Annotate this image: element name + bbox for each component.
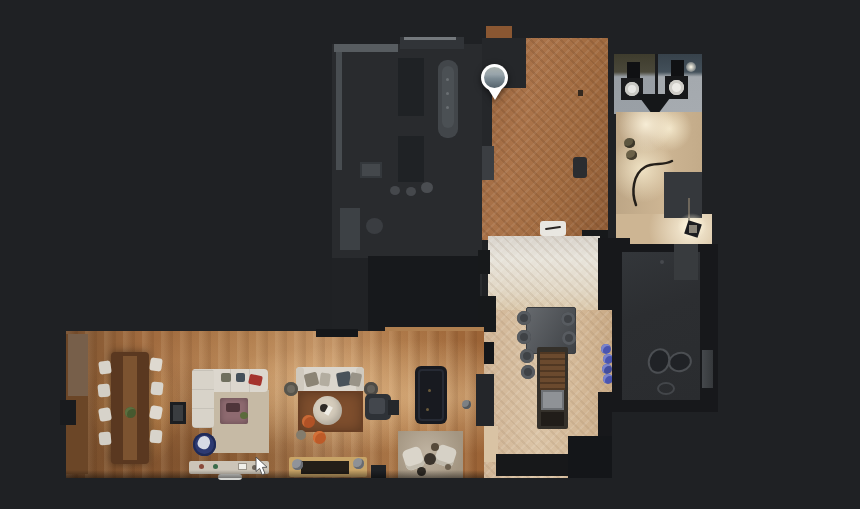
island-sink xyxy=(541,390,564,410)
sofa-throw-olive xyxy=(221,373,231,382)
sideroom-light-patch xyxy=(674,244,698,280)
sofa-two-pillow-2 xyxy=(319,372,331,386)
toilet-left-bowl xyxy=(625,82,639,96)
bar-stool-5 xyxy=(561,312,575,326)
dark-lower-left xyxy=(332,258,370,332)
wall-recess-left xyxy=(60,400,76,425)
dining-chair-l3 xyxy=(98,407,112,422)
bar-stool-4 xyxy=(521,365,535,379)
corner-table-1 xyxy=(424,453,436,465)
pouf-orange-1 xyxy=(302,415,315,428)
bench-knob-left xyxy=(292,459,303,470)
armchair-dark-seat xyxy=(369,398,385,414)
tub-dot-3 xyxy=(446,106,449,109)
panorama-location-pin[interactable] xyxy=(479,62,511,104)
laundry-machine xyxy=(360,162,382,178)
table-plant xyxy=(125,407,136,418)
bathroom-light-glow xyxy=(686,62,696,72)
stool-dark-3 xyxy=(421,182,433,193)
dining-chair-r2 xyxy=(150,381,163,395)
kitchen-bottom-right-dark xyxy=(568,436,612,478)
island-dark-end xyxy=(541,412,564,426)
entry-gray-ledge xyxy=(482,146,494,180)
hallway-gray-inset xyxy=(664,172,702,218)
console-item-2 xyxy=(213,464,218,469)
pool-table-dot-1 xyxy=(428,389,431,392)
livingroom-top-notch xyxy=(316,329,358,337)
console-item-1 xyxy=(199,464,204,469)
wall-highlight-left xyxy=(334,44,398,52)
livingroom-left-haze xyxy=(68,334,88,396)
wall-highlight-top xyxy=(404,37,456,40)
bathtub-inner xyxy=(442,66,454,128)
toilet-right-bowl xyxy=(669,80,684,95)
dining-chair-l1 xyxy=(98,360,112,375)
floor-knob xyxy=(462,400,471,409)
floor-blob xyxy=(366,218,383,234)
stool-dark-1 xyxy=(390,186,400,195)
sideroom-right-cabinet xyxy=(702,350,713,388)
side-table-left xyxy=(284,382,298,396)
kitchen-notch-a xyxy=(478,250,490,274)
tv-cabinet-inner xyxy=(173,405,183,421)
mouse-pointer-icon xyxy=(255,457,269,477)
bar-stool-6 xyxy=(562,331,576,345)
pouf-orange-2 xyxy=(313,431,326,444)
mauve-table-plant xyxy=(240,412,248,419)
entry-small-item xyxy=(578,90,583,96)
floor-lamp-shade xyxy=(689,225,697,233)
wall-strip-left xyxy=(336,52,342,170)
floorplan-viewer-canvas[interactable] xyxy=(0,0,860,509)
pin-thumbnail xyxy=(484,67,505,88)
kitchen-right-shadow-low xyxy=(598,392,612,440)
sideroom-dot xyxy=(660,260,664,264)
bar-stool-2 xyxy=(517,330,531,344)
blue-bottles-1 xyxy=(601,344,611,354)
room-kitchen-top-texture xyxy=(488,236,600,312)
l-sofa-vertical xyxy=(192,369,214,428)
bar-stool-1 xyxy=(517,311,531,325)
dark-lower-mid xyxy=(368,256,480,332)
inner-dark-column-a xyxy=(398,58,424,116)
stool-dark-2 xyxy=(406,187,416,196)
inner-dark-column-b xyxy=(398,136,424,182)
corner-table-2 xyxy=(431,443,439,451)
bench-knob-right xyxy=(353,458,364,469)
dining-chair-r1 xyxy=(149,357,163,372)
wall-column-dark xyxy=(476,374,494,426)
kitchen-bottom-shadow xyxy=(496,454,570,476)
blue-bottles-3 xyxy=(602,364,612,374)
cabinet-gray xyxy=(340,208,360,250)
dining-chair-r3 xyxy=(149,405,163,420)
toilet-right-cistern xyxy=(671,60,684,77)
island-wood-top xyxy=(540,352,565,390)
tub-dot-1 xyxy=(446,78,449,81)
bar-stool-3 xyxy=(520,349,534,363)
sideroom-ring xyxy=(657,382,675,395)
mauve-table-tray xyxy=(226,403,240,412)
dining-chair-l4 xyxy=(98,432,111,446)
sofa-throw-slate xyxy=(236,373,245,382)
dining-chair-r4 xyxy=(149,430,162,444)
dining-chair-l2 xyxy=(97,383,110,397)
pool-table-dot-2 xyxy=(426,408,429,411)
livingroom-bottom-shadow xyxy=(66,470,484,478)
armchair-side-table xyxy=(388,400,399,415)
tub-dot-2 xyxy=(446,92,449,95)
pouf-gray xyxy=(296,430,306,440)
pool-table-inner xyxy=(418,369,444,421)
entry-stool xyxy=(573,157,587,178)
toilet-left-cistern xyxy=(627,62,640,79)
console-item-3 xyxy=(238,463,247,470)
